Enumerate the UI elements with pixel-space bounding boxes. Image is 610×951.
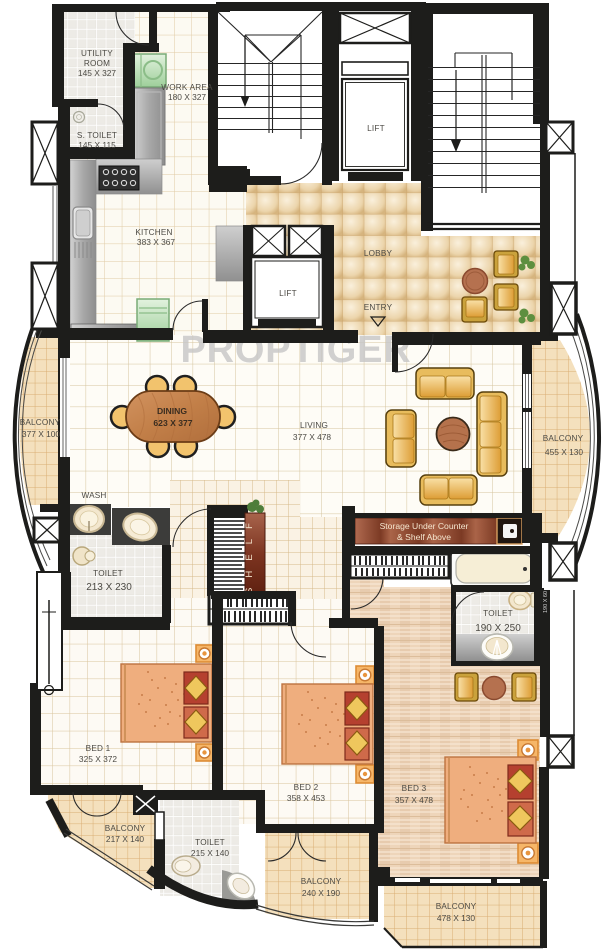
svg-text:TOILET: TOILET: [93, 569, 123, 578]
svg-text:BALCONY: BALCONY: [436, 902, 477, 911]
svg-text:LIFT: LIFT: [367, 124, 385, 133]
svg-text:& Shelf Above: & Shelf Above: [397, 532, 451, 542]
svg-text:190 X 60: 190 X 60: [543, 591, 549, 613]
svg-text:180 X 327: 180 X 327: [168, 92, 207, 102]
svg-text:UTILITY: UTILITY: [81, 49, 113, 58]
svg-text:213 X 230: 213 X 230: [86, 582, 132, 593]
svg-text:TOILET: TOILET: [195, 838, 225, 847]
svg-text:377 X 100: 377 X 100: [22, 429, 61, 439]
svg-text:145 X 115: 145 X 115: [78, 140, 116, 150]
svg-text:WASH: WASH: [81, 491, 106, 500]
svg-text:478 X 130: 478 X 130: [437, 913, 476, 923]
svg-text:KITCHEN: KITCHEN: [135, 228, 172, 237]
svg-text:325 X 372: 325 X 372: [79, 754, 118, 764]
svg-text:LIFT: LIFT: [279, 289, 297, 298]
svg-text:TOILET: TOILET: [483, 609, 513, 618]
svg-text:358 X 453: 358 X 453: [287, 793, 326, 803]
svg-text:ENTRY: ENTRY: [364, 303, 393, 312]
svg-text:383 X 367: 383 X 367: [137, 237, 176, 247]
svg-text:ROOM: ROOM: [84, 59, 110, 68]
svg-text:DINING: DINING: [157, 406, 187, 416]
svg-text:357 X 478: 357 X 478: [395, 795, 434, 805]
svg-text:BALCONY: BALCONY: [301, 877, 342, 886]
svg-text:BALCONY: BALCONY: [20, 418, 61, 427]
svg-text:LOBBY: LOBBY: [364, 249, 393, 258]
svg-text:WORK AREA: WORK AREA: [161, 83, 213, 92]
svg-text:LIVING: LIVING: [300, 421, 328, 430]
svg-text:455 X 130: 455 X 130: [545, 447, 584, 457]
svg-text:BED 1: BED 1: [86, 744, 111, 753]
svg-text:145 X 327: 145 X 327: [78, 68, 117, 78]
svg-text:377 X 478: 377 X 478: [293, 432, 332, 442]
svg-text:190 X 250: 190 X 250: [475, 623, 521, 634]
svg-text:Storage Under Counter: Storage Under Counter: [380, 521, 469, 531]
svg-text:BED 2: BED 2: [294, 783, 319, 792]
svg-text:BED 3: BED 3: [402, 784, 427, 793]
svg-text:BALCONY: BALCONY: [543, 434, 584, 443]
svg-text:217 X 140: 217 X 140: [106, 834, 145, 844]
svg-text:215 X 140: 215 X 140: [191, 848, 230, 858]
svg-text:S. TOILET: S. TOILET: [77, 131, 117, 140]
svg-text:BALCONY: BALCONY: [105, 824, 146, 833]
svg-text:623 X 377: 623 X 377: [153, 418, 192, 428]
svg-text:240 X 190: 240 X 190: [302, 888, 341, 898]
